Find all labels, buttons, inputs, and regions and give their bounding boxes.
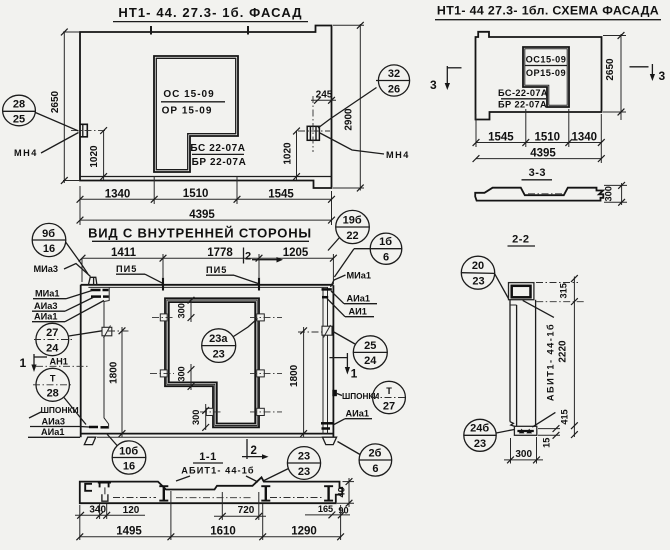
- svg-text:ШПОНКИ: ШПОНКИ: [342, 392, 379, 401]
- svg-text:НТ1- 44 27.3- 1бл. СХЕМА ФАСАД: НТ1- 44 27.3- 1бл. СХЕМА ФАСАДА: [437, 4, 659, 18]
- svg-text:АИа1: АИа1: [346, 409, 369, 419]
- svg-text:40: 40: [336, 487, 346, 497]
- svg-text:БС-22-07А: БС-22-07А: [498, 88, 548, 98]
- svg-text:1800: 1800: [109, 361, 120, 384]
- svg-text:16: 16: [123, 460, 135, 472]
- svg-text:24б: 24б: [470, 423, 489, 435]
- svg-text:ОС15-09: ОС15-09: [526, 55, 567, 65]
- svg-text:300: 300: [177, 303, 187, 318]
- svg-text:340: 340: [89, 505, 106, 516]
- svg-text:1: 1: [20, 356, 27, 370]
- svg-text:1340: 1340: [105, 189, 131, 201]
- svg-text:АИа1: АИа1: [34, 312, 57, 322]
- svg-text:16: 16: [43, 243, 55, 255]
- svg-text:2: 2: [245, 251, 251, 263]
- svg-text:245: 245: [316, 90, 333, 101]
- svg-text:27: 27: [383, 400, 395, 412]
- svg-text:2650: 2650: [605, 58, 616, 81]
- svg-text:МН4: МН4: [386, 150, 410, 160]
- svg-text:15: 15: [542, 438, 552, 448]
- svg-text:32: 32: [388, 68, 400, 80]
- svg-text:28: 28: [47, 388, 59, 400]
- svg-text:2-2: 2-2: [512, 234, 529, 246]
- svg-text:23: 23: [474, 438, 486, 450]
- svg-text:6: 6: [383, 252, 389, 264]
- svg-text:АИа3: АИа3: [42, 416, 65, 426]
- svg-text:23а: 23а: [209, 333, 228, 345]
- svg-text:720: 720: [238, 505, 255, 516]
- svg-text:25: 25: [364, 340, 376, 352]
- svg-text:1411: 1411: [111, 247, 137, 259]
- svg-text:МН4: МН4: [14, 148, 38, 158]
- svg-text:1б: 1б: [379, 236, 392, 248]
- svg-text:23: 23: [298, 466, 310, 478]
- svg-text:БР 22-07А: БР 22-07А: [498, 100, 547, 110]
- svg-text:165: 165: [318, 504, 333, 514]
- svg-text:23: 23: [472, 276, 484, 288]
- svg-text:9б: 9б: [42, 228, 55, 240]
- svg-text:23: 23: [298, 450, 310, 462]
- svg-text:415: 415: [560, 409, 570, 424]
- svg-text:1020: 1020: [282, 142, 293, 165]
- svg-text:ОР15-09: ОР15-09: [526, 68, 566, 78]
- svg-text:120: 120: [123, 505, 140, 516]
- svg-text:300: 300: [515, 449, 532, 460]
- svg-text:6: 6: [372, 463, 378, 475]
- svg-text:28: 28: [13, 99, 25, 111]
- svg-text:1495: 1495: [116, 525, 142, 537]
- svg-text:Т: Т: [50, 373, 56, 383]
- svg-text:24: 24: [364, 355, 377, 367]
- svg-text:26: 26: [388, 83, 400, 95]
- svg-text:2б: 2б: [369, 447, 382, 459]
- svg-text:2650: 2650: [50, 90, 61, 113]
- svg-text:2: 2: [251, 445, 257, 457]
- svg-text:ОС 15-09: ОС 15-09: [163, 89, 214, 100]
- svg-text:27: 27: [46, 327, 58, 339]
- svg-text:ВИД С ВНУТРЕННЕЙ СТОРОНЫ: ВИД С ВНУТРЕННЕЙ СТОРОНЫ: [88, 226, 312, 241]
- svg-text:10б: 10б: [119, 445, 138, 457]
- svg-text:АИ1: АИ1: [349, 307, 367, 317]
- svg-text:3-3: 3-3: [529, 167, 546, 179]
- svg-text:1: 1: [351, 367, 358, 381]
- svg-text:300: 300: [604, 186, 614, 201]
- svg-text:1290: 1290: [291, 525, 317, 537]
- svg-text:1340: 1340: [572, 131, 598, 143]
- svg-text:300: 300: [177, 366, 187, 381]
- svg-text:19б: 19б: [343, 214, 362, 226]
- svg-text:ПИ5: ПИ5: [206, 265, 227, 275]
- svg-text:АБИТ1- 44-1б: АБИТ1- 44-1б: [546, 323, 556, 401]
- svg-text:НТ1- 44. 27.3- 1б. ФАСАД: НТ1- 44. 27.3- 1б. ФАСАД: [118, 5, 302, 20]
- svg-text:ШПОНКИ: ШПОНКИ: [41, 405, 79, 415]
- svg-text:АН1: АН1: [50, 357, 68, 367]
- svg-text:Т: Т: [386, 386, 392, 396]
- svg-text:1778: 1778: [207, 247, 233, 259]
- svg-text:ПИ5: ПИ5: [116, 264, 137, 274]
- svg-text:АИа1: АИа1: [41, 427, 64, 437]
- svg-text:АИа1: АИа1: [347, 294, 370, 304]
- svg-text:315: 315: [559, 283, 569, 298]
- svg-text:4395: 4395: [189, 209, 215, 221]
- svg-text:1800: 1800: [289, 364, 300, 387]
- svg-text:25: 25: [13, 114, 25, 126]
- svg-text:2220: 2220: [558, 340, 569, 363]
- svg-text:90: 90: [338, 506, 348, 516]
- svg-text:МИа1: МИа1: [35, 289, 59, 299]
- svg-text:3: 3: [430, 78, 437, 92]
- svg-text:1510: 1510: [535, 131, 561, 143]
- svg-text:1510: 1510: [183, 188, 209, 200]
- svg-text:1-1: 1-1: [199, 451, 216, 463]
- svg-text:2900: 2900: [344, 108, 355, 131]
- svg-text:1545: 1545: [488, 131, 514, 143]
- svg-text:22: 22: [346, 230, 358, 242]
- svg-text:1610: 1610: [210, 525, 236, 537]
- svg-text:1545: 1545: [268, 188, 294, 200]
- svg-text:3: 3: [659, 69, 666, 83]
- svg-text:БС 22-07А: БС 22-07А: [190, 143, 245, 154]
- svg-text:1020: 1020: [89, 145, 100, 168]
- svg-text:МИа3: МИа3: [34, 264, 58, 274]
- svg-text:ОР 15-09: ОР 15-09: [162, 106, 213, 117]
- svg-text:АИа3: АИа3: [34, 301, 57, 311]
- svg-text:МИа1: МИа1: [347, 270, 371, 280]
- svg-text:АБИТ1- 44-1б: АБИТ1- 44-1б: [181, 466, 254, 476]
- svg-text:4395: 4395: [530, 147, 556, 159]
- svg-text:23: 23: [213, 348, 225, 360]
- svg-text:БР 22-07А: БР 22-07А: [192, 157, 247, 168]
- svg-text:1205: 1205: [283, 247, 309, 259]
- svg-text:24: 24: [46, 342, 59, 354]
- svg-text:300: 300: [191, 410, 201, 425]
- svg-text:20: 20: [472, 260, 484, 272]
